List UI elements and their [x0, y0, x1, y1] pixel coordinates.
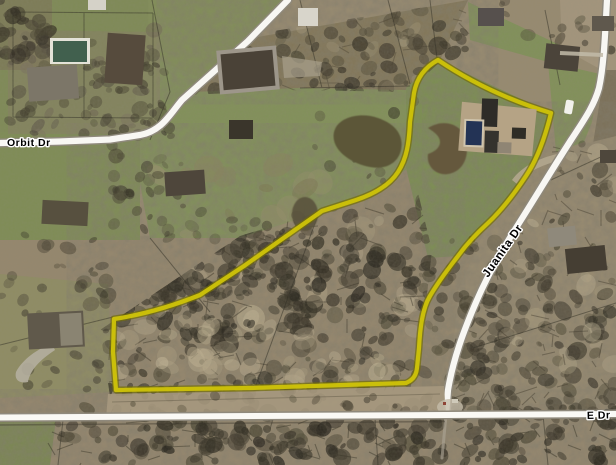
svg-text:Orbit Dr: Orbit Dr [7, 137, 51, 149]
svg-text:E Dr: E Dr [587, 409, 611, 422]
